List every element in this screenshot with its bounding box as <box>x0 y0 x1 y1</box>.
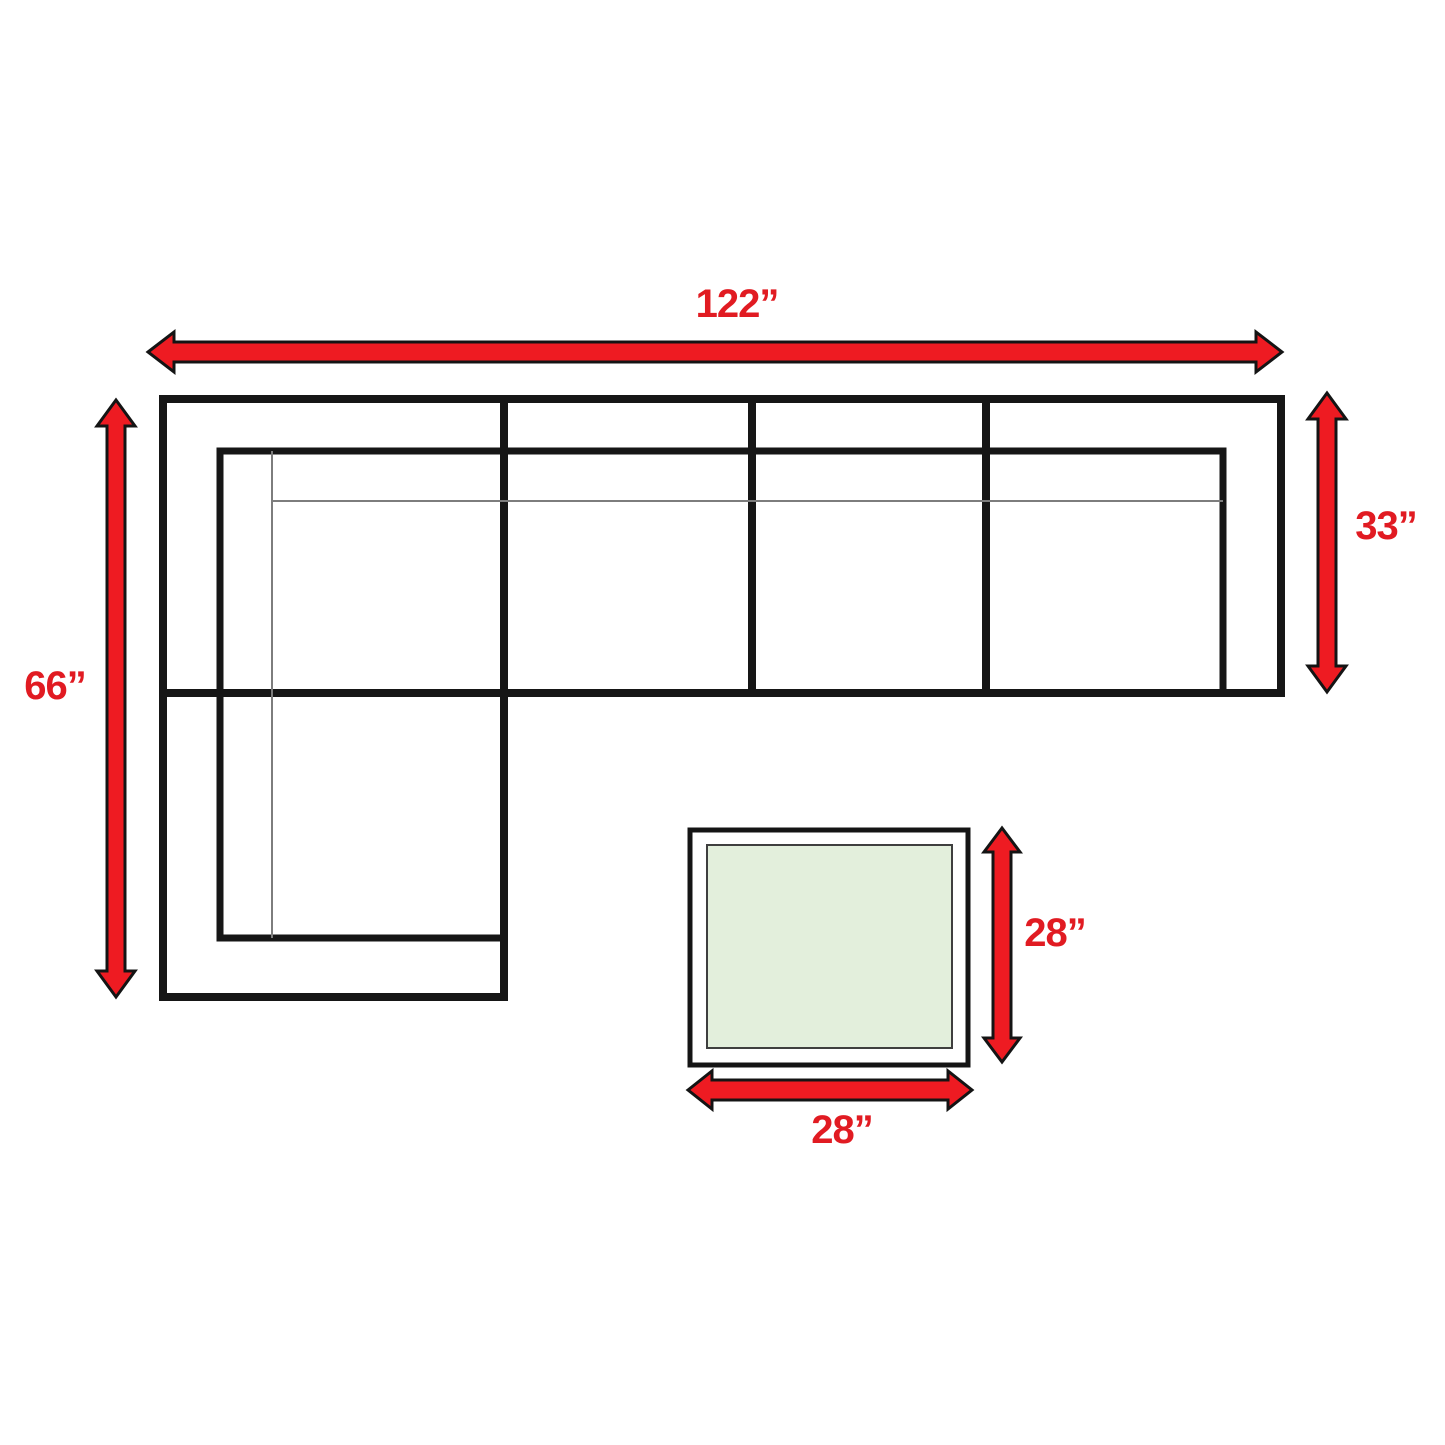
dimension-label-sofa-body-depth: 33” <box>1355 506 1417 546</box>
sofa-width-arrow-icon <box>148 332 1282 372</box>
furniture-dimension-diagram: 122” 66” 33” 28” 28” <box>0 0 1445 1445</box>
sofa-chaise-depth-arrow-icon <box>97 400 135 997</box>
diagram-drawing <box>0 0 1445 1445</box>
table-depth-arrow-icon <box>984 828 1020 1062</box>
dimension-label-sofa-chaise-depth: 66” <box>24 666 86 706</box>
end-table-shape <box>690 830 968 1065</box>
sofa-body-depth-arrow-icon <box>1308 393 1346 692</box>
table-top-surface <box>707 845 952 1048</box>
dimension-label-table-depth: 28” <box>1024 913 1086 953</box>
dimension-label-table-width: 28” <box>811 1110 873 1150</box>
dimension-label-sofa-width: 122” <box>696 284 779 324</box>
table-width-arrow-icon <box>688 1071 972 1109</box>
